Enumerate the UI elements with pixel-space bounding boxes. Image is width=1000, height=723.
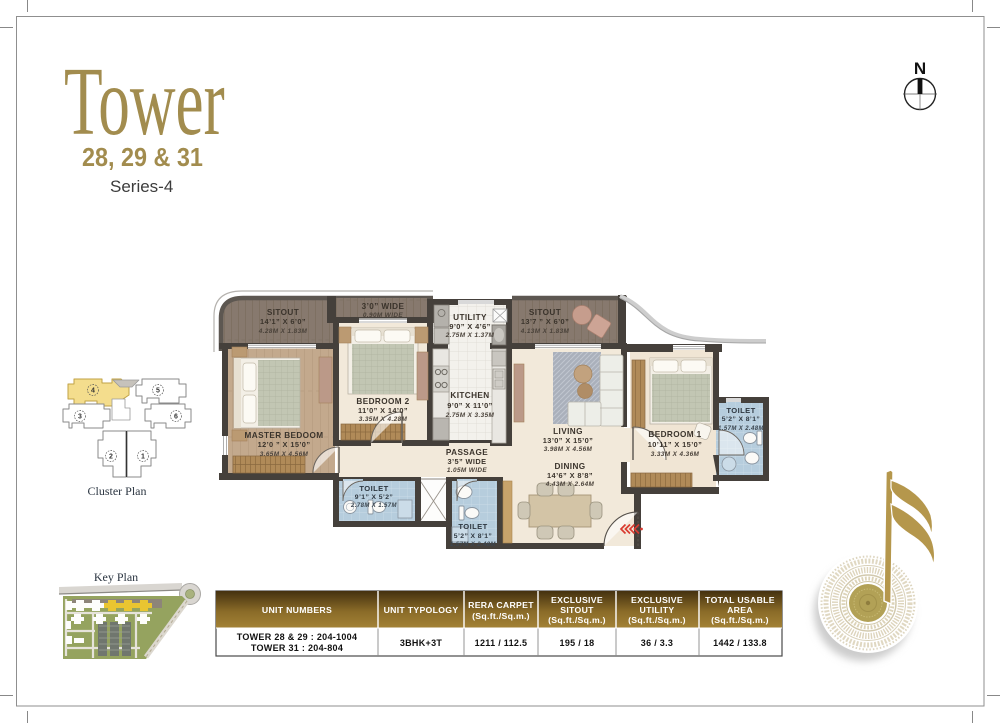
svg-text:3.65M X 4.56M: 3.65M X 4.56M <box>260 451 309 458</box>
svg-text:13’0” X 15’0”: 13’0” X 15’0” <box>543 436 593 445</box>
svg-text:Series-4: Series-4 <box>110 177 173 196</box>
svg-text:3BHK+3T: 3BHK+3T <box>400 638 443 648</box>
svg-text:Cluster Plan: Cluster Plan <box>88 484 147 498</box>
svg-text:UNIT NUMBERS: UNIT NUMBERS <box>262 605 332 615</box>
svg-text:Key Plan: Key Plan <box>94 570 138 584</box>
svg-text:1.57M X 2.48M: 1.57M X 2.48M <box>718 426 764 432</box>
svg-text:4.28M X 1.83M: 4.28M X 1.83M <box>258 328 308 335</box>
svg-text:3: 3 <box>78 414 82 421</box>
svg-text:2: 2 <box>109 454 113 461</box>
svg-text:SITOUT: SITOUT <box>529 308 561 317</box>
svg-text:5’2” X 8’1”: 5’2” X 8’1” <box>722 416 760 423</box>
svg-text:14’6” X 8’8”: 14’6” X 8’8” <box>547 471 593 480</box>
svg-text:14’1” X 6’0”: 14’1” X 6’0” <box>260 317 306 326</box>
svg-text:1211 / 112.5: 1211 / 112.5 <box>475 638 528 648</box>
svg-text:(Sq.ft./Sq.m.): (Sq.ft./Sq.m.) <box>628 615 686 625</box>
svg-text:SITOUT: SITOUT <box>560 605 594 615</box>
svg-text:6: 6 <box>174 414 178 421</box>
svg-text:3’5” WIDE: 3’5” WIDE <box>448 457 487 466</box>
svg-text:195 / 18: 195 / 18 <box>560 638 595 648</box>
svg-text:BEDROOM 2: BEDROOM 2 <box>356 397 409 406</box>
svg-text:9’1” X 5’2”: 9’1” X 5’2” <box>355 494 393 501</box>
svg-text:3.98M X 4.56M: 3.98M X 4.56M <box>544 446 593 453</box>
svg-text:13’7 ” X 6’0”: 13’7 ” X 6’0” <box>521 317 569 326</box>
svg-text:4: 4 <box>91 388 95 395</box>
svg-text:AREA: AREA <box>727 605 753 615</box>
svg-text:UNIT TYPOLOGY: UNIT TYPOLOGY <box>384 605 459 615</box>
svg-text:SITOUT: SITOUT <box>267 308 299 317</box>
svg-text:11’0” X 14’0”: 11’0” X 14’0” <box>358 406 408 415</box>
svg-text:4.13M X 1.83M: 4.13M X 1.83M <box>520 328 570 335</box>
svg-text:TOILET: TOILET <box>726 406 755 415</box>
svg-text:3.35M X 4.28M: 3.35M X 4.28M <box>359 416 408 423</box>
svg-text:9’0” X 4’6”: 9’0” X 4’6” <box>449 322 490 331</box>
svg-text:DINING: DINING <box>554 462 585 471</box>
svg-text:RERA CARPET: RERA CARPET <box>468 600 534 610</box>
svg-text:1.57M X 2.48M: 1.57M X 2.48M <box>450 542 496 548</box>
svg-text:(Sq.ft./Sq.m.): (Sq.ft./Sq.m.) <box>472 611 530 621</box>
svg-text:KITCHEN: KITCHEN <box>450 391 489 400</box>
svg-text:UTILITY: UTILITY <box>453 313 487 322</box>
svg-text:(Sq.ft./Sq.m.): (Sq.ft./Sq.m.) <box>711 615 769 625</box>
svg-text:LIVING: LIVING <box>553 427 583 436</box>
svg-text:TOWER 31 : 204-804: TOWER 31 : 204-804 <box>251 643 343 653</box>
svg-text:5’2” X 8’1”: 5’2” X 8’1” <box>454 533 492 540</box>
svg-text:3’0” WIDE: 3’0” WIDE <box>362 302 405 311</box>
svg-text:36 / 3.3: 36 / 3.3 <box>641 638 673 648</box>
svg-text:1442 / 133.8: 1442 / 133.8 <box>713 638 767 648</box>
svg-text:TOTAL USABLE: TOTAL USABLE <box>705 595 775 605</box>
svg-text:4.43M X 2.64M: 4.43M X 2.64M <box>545 481 595 488</box>
svg-text:MASTER BEDOOM: MASTER BEDOOM <box>245 431 324 440</box>
svg-text:1: 1 <box>141 454 145 461</box>
svg-text:(Sq.ft./Sq.m.): (Sq.ft./Sq.m.) <box>548 615 606 625</box>
svg-text:10’11” X 15’0”: 10’11” X 15’0” <box>648 440 703 449</box>
svg-text:2.75M X 3.35M: 2.75M X 3.35M <box>445 412 495 419</box>
svg-text:N: N <box>914 59 926 78</box>
svg-text:0.90M WIDE: 0.90M WIDE <box>363 312 404 319</box>
svg-text:3.33M X 4.36M: 3.33M X 4.36M <box>651 451 700 458</box>
svg-text:PASSAGE: PASSAGE <box>446 448 488 457</box>
svg-text:TOILET: TOILET <box>458 522 487 531</box>
svg-text:TOILET: TOILET <box>359 484 388 493</box>
svg-text:9’0” X 11’0”: 9’0” X 11’0” <box>447 401 492 410</box>
svg-text:1.05M WIDE: 1.05M WIDE <box>447 467 488 474</box>
svg-text:28, 29 & 31: 28, 29 & 31 <box>82 144 203 172</box>
svg-text:TOWER 28 & 29 : 204-1004: TOWER 28 & 29 : 204-1004 <box>237 632 358 642</box>
svg-text:BEDROOM 1: BEDROOM 1 <box>648 430 701 439</box>
svg-text:UTILITY: UTILITY <box>640 605 675 615</box>
svg-text:EXCLUSIVE: EXCLUSIVE <box>631 595 683 605</box>
svg-text:Tower: Tower <box>64 48 225 156</box>
svg-text:12’0 ” X 15’0”: 12’0 ” X 15’0” <box>258 440 311 449</box>
svg-text:5: 5 <box>156 388 160 395</box>
svg-text:2.75M X 1.37M: 2.75M X 1.37M <box>445 332 495 339</box>
svg-text:2.78M X 1.57M: 2.78M X 1.57M <box>350 503 397 509</box>
svg-text:EXCLUSIVE: EXCLUSIVE <box>551 595 603 605</box>
